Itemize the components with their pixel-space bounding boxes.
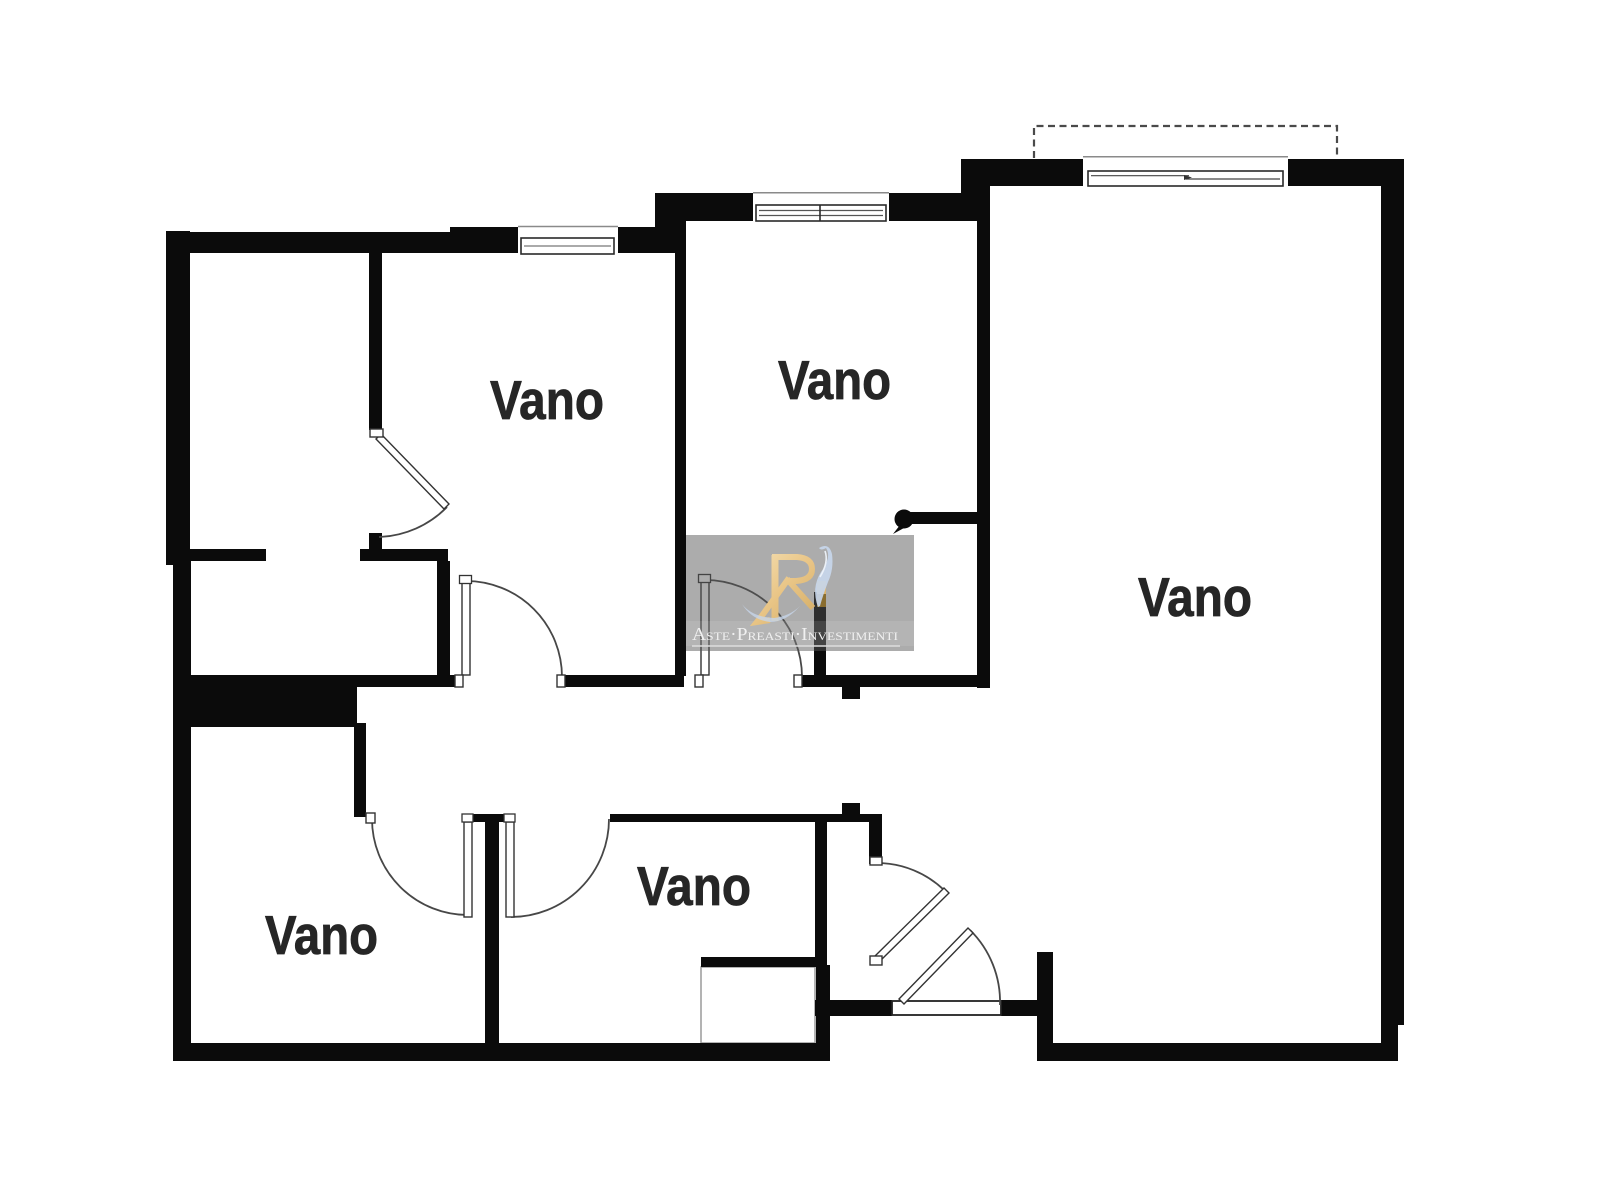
svg-text:Vano: Vano [1138,567,1252,628]
svg-text:Vano: Vano [490,370,604,431]
svg-text:Vano: Vano [265,905,378,966]
svg-text:Aste·Preasti·Investimenti: Aste·Preasti·Investimenti [692,624,898,644]
svg-text:Vano: Vano [637,856,751,917]
svg-text:Vano: Vano [778,350,891,411]
